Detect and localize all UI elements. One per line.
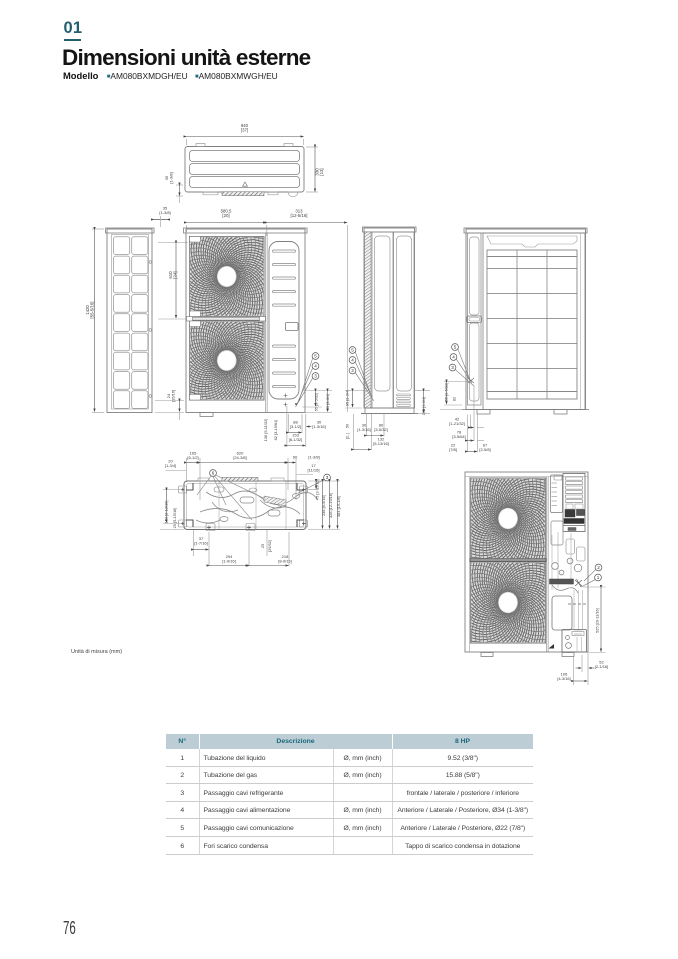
svg-text:610[24]: 610[24]: [168, 271, 178, 279]
svg-text:[25/32]: [25/32]: [267, 540, 272, 552]
svg-text:384 [15-1/8]: 384 [15-1/8]: [336, 496, 341, 517]
svg-text:3: 3: [451, 365, 454, 370]
svg-text:106[4-3/16]: 106[4-3/16]: [557, 672, 571, 681]
svg-text:82 [3-15/64]: 82 [3-15/64]: [273, 420, 278, 441]
svg-text:620[24-3/8]: 620[24-3/8]: [233, 451, 247, 460]
svg-text:60: 60: [293, 455, 298, 460]
svg-text:330[13]: 330[13]: [315, 168, 325, 176]
svg-text:525 [20-11/16]: 525 [20-11/16]: [595, 608, 600, 633]
svg-text:5: 5: [351, 348, 354, 353]
svg-text:75 [2-15/16]: 75 [2-15/16]: [315, 479, 320, 500]
svg-text:22[7/8]: 22[7/8]: [449, 443, 457, 452]
svg-text:5: 5: [314, 354, 317, 359]
svg-text:20[1-3/4]: 20[1-3/4]: [165, 459, 176, 468]
svg-text:82: 82: [452, 397, 457, 401]
svg-text:153 [3-13/16]: 153 [3-13/16]: [164, 501, 169, 524]
svg-text:42[1-21/32]: 42[1-21/32]: [449, 417, 465, 426]
svg-text:3: 3: [314, 374, 317, 379]
svg-text:25: 25: [260, 544, 265, 548]
svg-text:3: 3: [326, 475, 329, 480]
svg-text:50: 50: [345, 423, 350, 428]
svg-text:78[3-5/64]: 78[3-5/64]: [452, 430, 466, 439]
svg-text:6: 6: [212, 471, 215, 476]
svg-text:30[1-3/16]: 30[1-3/16]: [357, 423, 371, 432]
svg-text:55 [2-5/32]: 55 [2-5/32]: [444, 383, 449, 402]
svg-text:940[37]: 940[37]: [241, 123, 249, 133]
svg-text:1420[55-5/16]: 1420[55-5/16]: [85, 302, 95, 319]
svg-text:313[12-5/16]: 313[12-5/16]: [291, 209, 308, 219]
svg-text:55 [2-5/32]: 55 [2-5/32]: [314, 393, 319, 412]
svg-text:4: 4: [314, 364, 317, 369]
svg-text:4: 4: [452, 355, 455, 360]
svg-text:[2..]: [2..]: [345, 433, 350, 440]
svg-text:236 [9-5/16]: 236 [9-5/16]: [321, 495, 326, 516]
svg-text:5: 5: [454, 345, 457, 350]
svg-text:4: 4: [351, 358, 354, 363]
svg-text:67[2-5/8]: 67[2-5/8]: [479, 443, 490, 452]
svg-text:35[1-3/8]: 35[1-3/8]: [164, 172, 173, 183]
svg-text:25 [5-15/16]: 25 [5-15/16]: [172, 508, 177, 529]
svg-text:132[5-13/16]: 132[5-13/16]: [373, 437, 389, 446]
svg-text:136 [5-11/32]: 136 [5-11/32]: [263, 419, 268, 442]
svg-text:218[8-9/16]: 218[8-9/16]: [278, 554, 292, 563]
svg-text:165[6-1/2]: 165[6-1/2]: [187, 451, 198, 460]
svg-text:80[3-5/32]: 80[3-5/32]: [374, 423, 388, 432]
svg-text:17[11/16]: 17[11/16]: [308, 463, 320, 472]
svg-text:153[6-1/32]: 153[6-1/32]: [289, 433, 303, 442]
svg-text:37[1-7/16]: 37[1-7/16]: [194, 536, 208, 545]
svg-text:328 [12-15/16]: 328 [12-15/16]: [328, 493, 333, 518]
svg-text:52[2-1/16]: 52[2-1/16]: [595, 660, 609, 669]
svg-text:3: 3: [351, 368, 354, 373]
svg-text:95 [3-3/4]: 95 [3-3/4]: [345, 390, 350, 406]
svg-text:[1-3/8]: [1-3/8]: [308, 455, 319, 460]
svg-text:35[1-3/8]: 35[1-3/8]: [159, 206, 170, 215]
svg-text:294[1-9/16]: 294[1-9/16]: [222, 554, 236, 563]
svg-text:88[3-1/2]: 88[3-1/2]: [290, 420, 301, 429]
svg-text:30[1-3/16]: 30[1-3/16]: [312, 420, 326, 429]
svg-text:580.5[20]: 580.5[20]: [221, 209, 232, 219]
svg-text:1: 1: [597, 575, 600, 580]
svg-text:2: 2: [597, 565, 600, 570]
